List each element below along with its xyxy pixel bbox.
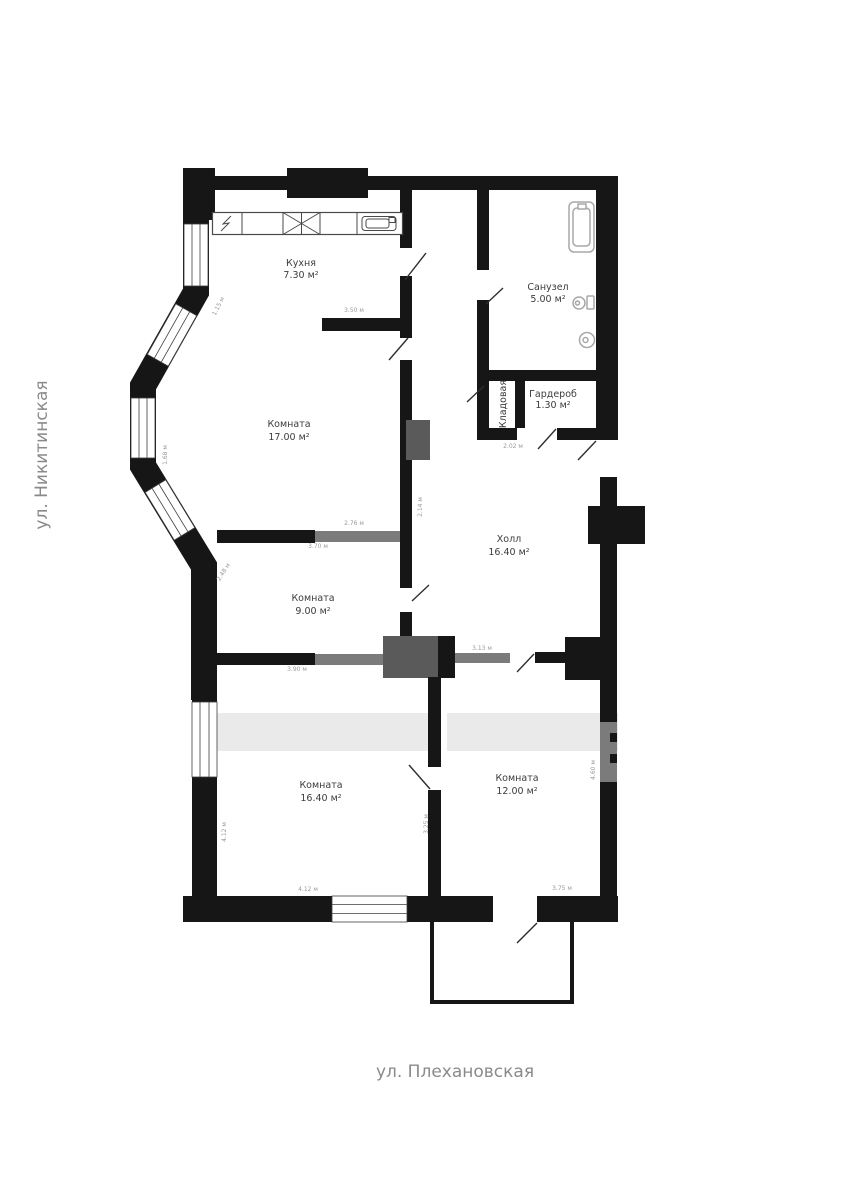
window-room12-right <box>600 722 617 782</box>
room-label-room12: Комната <box>495 773 538 784</box>
window-bay-upper <box>184 224 208 286</box>
door-room12 <box>517 654 534 672</box>
door-room16 <box>409 765 430 789</box>
door-kitchen <box>405 253 426 280</box>
dim-label: 4.12 м <box>298 886 318 893</box>
room-label-kitchen: Кухня <box>286 258 316 269</box>
dim-label: 2.02 м <box>503 443 523 450</box>
room-area-room9: 9.00 м² <box>295 606 330 617</box>
window-bay-angled-upper <box>147 304 196 366</box>
floor-plan-svg: Кухня 7.30 м² Санузел 5.00 м² Гардероб 1… <box>0 0 849 1200</box>
door-wardrobe <box>538 429 556 449</box>
room-area-hall: 16.40 м² <box>488 547 529 558</box>
door-room9 <box>412 585 429 601</box>
room-label-room9: Комната <box>291 593 334 604</box>
balcony <box>432 922 572 1002</box>
dim-label: 4.60 м <box>590 760 597 780</box>
room-label-wardrobe: Гардероб <box>529 389 577 400</box>
room-area-wardrobe: 1.30 м² <box>535 400 570 411</box>
window-bay-middle <box>131 398 155 458</box>
dim-label: 3.13 м <box>472 645 492 652</box>
room-area-room17: 17.00 м² <box>268 432 309 443</box>
washbasin-icon <box>580 333 595 348</box>
walls <box>143 168 645 922</box>
window-room16-left <box>192 702 217 777</box>
dim-label: 4.12 м <box>221 822 228 842</box>
kitchen-counter <box>213 213 403 235</box>
floor-plan-page: Кухня 7.30 м² Санузел 5.00 м² Гардероб 1… <box>0 0 849 1200</box>
street-label-bottom: ул. Плехановская <box>376 1062 534 1082</box>
dim-label: 3.50 м <box>344 307 364 314</box>
room-area-bathroom: 5.00 м² <box>530 294 565 305</box>
dim-label: 3.25 м <box>423 814 430 834</box>
room-label-bathroom: Санузел <box>527 282 568 293</box>
dim-label: 3.70 м <box>308 543 328 550</box>
room-label-hall: Холл <box>497 534 521 545</box>
room-area-room16: 16.40 м² <box>300 793 341 804</box>
door-entry <box>578 441 596 460</box>
street-label-left: ул. Никитинская <box>32 380 52 529</box>
dim-label: 1.15 м <box>211 296 226 317</box>
dim-label: 3.90 м <box>287 666 307 673</box>
dim-label: 2.76 м <box>344 520 364 527</box>
window-room16-bottom <box>332 896 407 922</box>
door-balcony <box>517 923 537 943</box>
dim-label: 2.48 м <box>216 562 232 582</box>
door-bathroom <box>486 288 503 304</box>
watermark <box>198 713 618 751</box>
bathtub-icon <box>569 202 594 252</box>
room-label-storage: Кладовая <box>498 380 509 428</box>
dim-label: 1.68 м <box>162 445 169 465</box>
room-area-room12: 12.00 м² <box>496 786 537 797</box>
room-label-room16: Комната <box>299 780 342 791</box>
dimension-labels: 1.15 м 3.50 м 1.68 м 2.02 м 2.76 м 3.70 … <box>162 296 597 893</box>
room-area-kitchen: 7.30 м² <box>283 270 318 281</box>
window-bay-angled-lower <box>145 480 195 540</box>
door-room17 <box>389 338 408 360</box>
room-label-room17: Комната <box>267 419 310 430</box>
bathroom-fixtures <box>569 202 595 348</box>
toilet-icon <box>573 296 594 309</box>
doors <box>389 253 596 943</box>
dim-label: 2.14 м <box>417 497 424 517</box>
dim-label: 3.75 м <box>552 885 572 892</box>
